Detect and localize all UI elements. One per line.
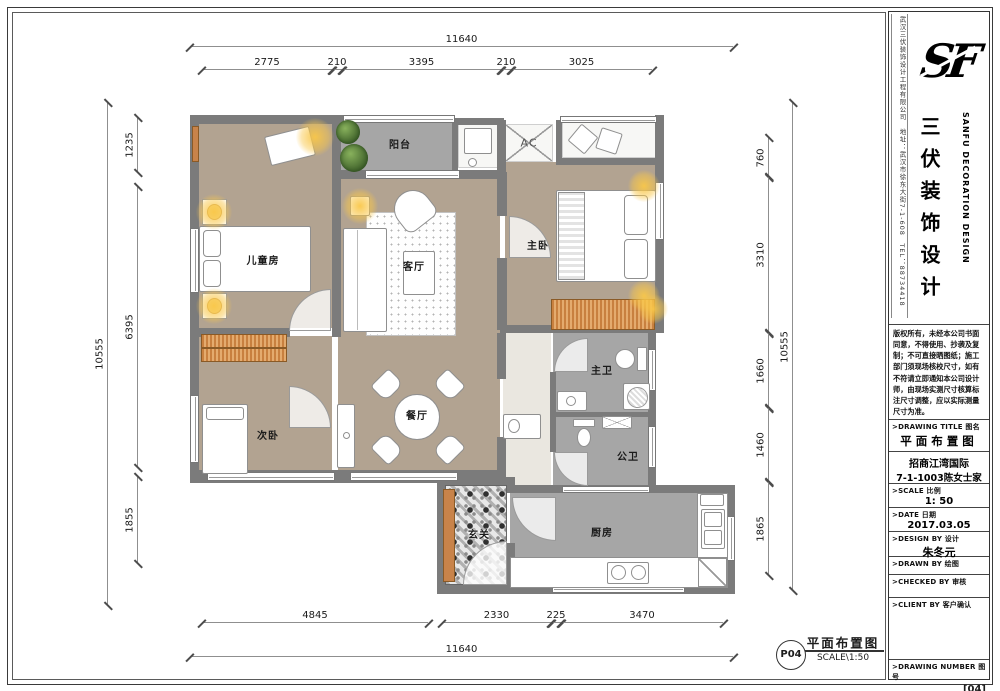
dimension-segment: 4845 [202, 622, 428, 623]
wall [497, 120, 506, 176]
client-by-row: >CLIENT BY 客户确认 [889, 598, 989, 660]
scale-row: >SCALE 比例 1: 50 [889, 484, 989, 508]
dimension-segment: 3310 [768, 177, 769, 333]
design-by-row: >DESIGN BY 设计 朱冬元 [889, 532, 989, 557]
floor-drain [468, 158, 477, 167]
project-unit: 7-1-1003陈女士家 [889, 470, 989, 484]
pillow [206, 407, 244, 420]
stamp-scale: SCALE\1:50 [817, 653, 869, 663]
dimension-segment: 1235 [137, 118, 138, 172]
dimension-segment: 1865 [768, 482, 769, 575]
lamp-glow [296, 118, 334, 156]
wall [553, 412, 648, 417]
window [190, 395, 199, 463]
client-by-label: >CLIENT BY 客户确认 [889, 598, 989, 610]
checked-by-label: >CHECKED BY 审核 [889, 575, 989, 587]
window [350, 472, 458, 481]
drawn-by-row: >DRAWN BY 绘图 [889, 557, 989, 575]
room-label-living: 客厅 [403, 263, 425, 273]
drawing-title-value: 平面布置图 [889, 433, 989, 449]
floor-plan-sheet: 儿童房 阳台 主卧 客厅 次卧 餐厅 主卫 公卫 厨房 玄关 AC 11640 … [0, 0, 1000, 691]
window-balcony-slider [365, 170, 460, 179]
date-row: >DATE 日期 2017.03.05 [889, 508, 989, 532]
dimension-segment: 2330 [442, 622, 551, 623]
lamp-glow [628, 170, 660, 202]
dimension-segment: 1660 [768, 333, 769, 408]
lamp-glow [196, 288, 232, 324]
dimension-top-total: 11640 [190, 46, 733, 47]
floor-corridor [503, 331, 551, 487]
pillow [624, 239, 648, 279]
dimension-segment: 3395 [342, 69, 501, 70]
room-label-dining: 餐厅 [406, 412, 428, 422]
company-info-vertical: 武汉三伏装饰设计工程有限公司 地址：武汉市徐东大街7-1-608 TEL：887… [891, 14, 908, 318]
shower-area [602, 416, 632, 429]
drawing-title-row: >DRAWING TITLE 图名 平面布置图 [889, 420, 989, 452]
toilet-bowl [577, 428, 591, 447]
toilet-tank [637, 347, 647, 371]
scale-label: >SCALE 比例 [889, 484, 989, 496]
lamp-glow [638, 294, 668, 324]
window [343, 115, 455, 123]
room-label-master-bath: 主卫 [591, 367, 613, 377]
checked-by-row: >CHECKED BY 审核 [889, 575, 989, 598]
project-row: 招商江湾国际 7-1-1003陈女士家 [889, 452, 989, 484]
wall [497, 172, 507, 216]
bed-blanket [558, 192, 585, 280]
toilet-tank [573, 419, 595, 427]
drawing-number-value: [04] [963, 682, 989, 691]
drawn-by-label: >DRAWN BY 绘图 [889, 557, 989, 569]
date-label: >DATE 日期 [889, 508, 989, 520]
scale-value: 1: 50 [889, 496, 989, 507]
kitchen-sink-basin [704, 530, 722, 545]
dimension-segment: 3025 [511, 69, 652, 70]
drawing-title-label: >DRAWING TITLE 图名 [889, 420, 989, 432]
wardrobe-second [201, 348, 287, 362]
washing-machine-drum [627, 387, 648, 408]
corner-cabinet [698, 558, 727, 587]
copyright-text: 版权所有，未经本公司书面同意，不得使用、抄袭及复制；不可直接晒图纸；施工部门须现… [889, 325, 989, 420]
drawing-number-label: >DRAWING NUMBER 图号 [889, 660, 989, 682]
dimension-right-total: 10555 [792, 103, 793, 590]
room-label-second: 次卧 [257, 432, 279, 442]
shoe-cabinet [443, 489, 455, 582]
drawing-number-row: >DRAWING NUMBER 图号 [04] [889, 660, 989, 679]
window [560, 116, 657, 123]
title-block: 武汉三伏装饰设计工程有限公司 地址：武汉市徐东大街7-1-608 TEL：887… [888, 11, 990, 680]
room-label-kids: 儿童房 [247, 257, 280, 267]
sideboard-handle [343, 432, 350, 439]
dimension-segment: 6395 [137, 187, 138, 467]
dimension-bottom-total: 11640 [190, 656, 733, 657]
dimension-segment: 2775 [202, 69, 332, 70]
wall [497, 437, 506, 485]
company-name-en: SANFU DECORATION DESIGN [961, 112, 970, 327]
room-label-entry: 玄关 [468, 531, 490, 541]
design-by-label: >DESIGN BY 设计 [889, 532, 989, 544]
plant [336, 120, 360, 144]
dimension-segment: 1460 [768, 408, 769, 482]
sofa-cushion-line [357, 230, 358, 330]
copyright-box: 版权所有，未经本公司书面同意，不得使用、抄袭及复制；不可直接晒图纸；施工部门须现… [889, 324, 989, 420]
vanity-basin [508, 419, 520, 433]
stove-burner [631, 565, 646, 580]
dimension-segment: 3470 [561, 622, 723, 623]
wall [332, 115, 341, 337]
laundry-sink [464, 128, 492, 154]
lamp-glow [196, 194, 232, 230]
stamp-title: 平面布置图 [807, 633, 880, 652]
window [190, 228, 199, 293]
kitchen-sink-basin [704, 512, 722, 527]
room-label-public-bath: 公卫 [617, 453, 639, 463]
wall [497, 258, 507, 330]
wall [556, 158, 660, 165]
room-label-balcony: 阳台 [389, 141, 411, 151]
window [562, 486, 650, 493]
wall [550, 372, 556, 452]
company-name-cn: 三伏装饰设计 [915, 116, 944, 326]
wardrobe-second [201, 334, 287, 348]
kitchen-appliance [700, 494, 724, 506]
window [648, 426, 656, 468]
sink-basin [566, 396, 576, 406]
lamp-glow [342, 188, 378, 224]
wall [452, 118, 458, 176]
door-jamb [192, 126, 199, 162]
date-value: 2017.03.05 [889, 520, 989, 531]
stamp-circle: P04 [776, 640, 806, 670]
pillow [203, 230, 221, 257]
toilet-bowl [615, 349, 635, 369]
room-label-master: 主卧 [527, 242, 549, 252]
dimension-left-total: 10555 [107, 103, 108, 605]
pillow [203, 260, 221, 287]
room-label-kitchen: 厨房 [591, 529, 613, 539]
stove-burner [611, 565, 626, 580]
plant [340, 144, 368, 172]
wall [458, 170, 500, 179]
ac-label: AC [520, 138, 537, 149]
dimension-segment: 1855 [137, 477, 138, 563]
wall [497, 333, 506, 379]
sofa [343, 228, 387, 332]
coffee-table [403, 251, 435, 295]
logo: SF [915, 20, 985, 108]
wall [556, 120, 562, 165]
dimension-segment: 760 [768, 138, 769, 177]
project-name: 招商江湾国际 [889, 455, 989, 470]
